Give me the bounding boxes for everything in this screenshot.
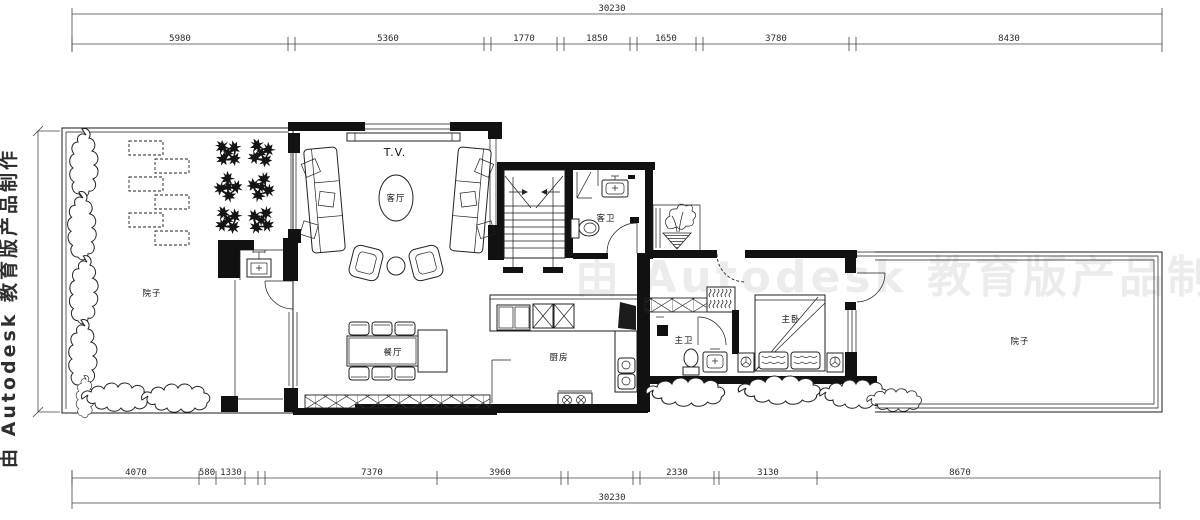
dim-top-total: 30230 xyxy=(598,4,625,14)
low-cabinet-strip xyxy=(305,395,490,408)
dim-top-1: 5980 xyxy=(169,34,191,44)
side-table xyxy=(387,257,405,275)
master-bath-door xyxy=(698,317,726,345)
double-sink xyxy=(618,358,635,389)
dim-top-6: 3780 xyxy=(765,34,787,44)
cooktop-units xyxy=(533,304,574,328)
entry-porch xyxy=(218,238,298,412)
master-toilet xyxy=(683,349,699,375)
guest-toilet xyxy=(571,219,599,238)
dimension-chain-bottom: 4070 580 1330 7370 3960 2330 3130 8670 3… xyxy=(72,468,1160,509)
dim-bottom-2: 580 xyxy=(199,468,215,478)
tv-cabinet xyxy=(347,133,460,141)
kitchen-label: 厨房 xyxy=(549,352,568,363)
guest-bathroom-label: 客卫 xyxy=(596,213,615,224)
master-sink xyxy=(703,349,727,372)
floorplan-canvas: 由 Autodesk 教育版产品制作 由 Autodesk 教育版产品制作 30… xyxy=(0,0,1200,520)
dim-bottom-7: 3130 xyxy=(757,468,779,478)
stair-direction-arrows xyxy=(522,189,547,195)
courtyard-left-label: 院子 xyxy=(142,288,161,299)
dim-bottom-4: 7370 xyxy=(361,468,383,478)
dimension-line-left xyxy=(33,126,60,417)
nightstand-right xyxy=(827,353,843,372)
living-room: T.V. 客厅 xyxy=(288,122,502,282)
stepping-stones xyxy=(129,141,189,245)
dimension-chain-top: 30230 5980 5360 1770 1850 1650 3780 8430 xyxy=(72,4,1162,52)
dim-top-7: 8430 xyxy=(998,34,1020,44)
shower-screen xyxy=(577,172,592,198)
tree-group xyxy=(206,135,280,238)
bed xyxy=(755,295,825,371)
potted-plant xyxy=(663,204,696,249)
dim-top-3: 1770 xyxy=(513,34,535,44)
armchair-right xyxy=(408,244,445,282)
dim-bottom-5: 3960 xyxy=(489,468,511,478)
sideboard xyxy=(418,330,447,372)
dining-room: 餐厅 xyxy=(293,322,497,415)
dim-bottom-3: 1330 xyxy=(220,468,242,478)
armchair-left xyxy=(348,244,385,282)
hedge-left xyxy=(66,129,99,418)
nightstand-left xyxy=(738,353,754,372)
watermark-left-text: 由 Autodesk 教育版产品制作 xyxy=(0,148,20,468)
courtyard-right-label: 院子 xyxy=(1010,336,1029,347)
living-room-label: 客厅 xyxy=(386,193,405,204)
guest-sink xyxy=(602,175,635,197)
closet-hangers xyxy=(707,287,735,312)
dim-bottom-8: 8670 xyxy=(949,468,971,478)
master-bathroom-label: 主卫 xyxy=(674,335,693,346)
hedge-bottom xyxy=(82,383,210,412)
wardrobe xyxy=(645,298,710,312)
fridge xyxy=(497,305,530,330)
dim-bottom-1: 4070 xyxy=(125,468,147,478)
dim-top-2: 5360 xyxy=(377,34,399,44)
entry-basin xyxy=(247,250,271,277)
bushes-south xyxy=(646,376,921,411)
tv-label: T.V. xyxy=(383,146,407,159)
porch-door xyxy=(265,281,293,309)
master-bathroom: 主卫 xyxy=(656,310,739,375)
dim-bottom-6: 2330 xyxy=(666,468,688,478)
master-bedroom-label: 主卧 xyxy=(781,314,800,325)
dim-bottom-total: 30230 xyxy=(598,493,625,503)
guest-bathroom: 客卫 xyxy=(571,162,653,259)
watermark-educational-left: 由 Autodesk 教育版产品制作 xyxy=(0,148,20,468)
counter-corner-unit xyxy=(618,302,636,330)
floorplan-drawing: 由 Autodesk 教育版产品制作 由 Autodesk 教育版产品制作 30… xyxy=(0,0,1200,520)
dim-top-4: 1850 xyxy=(586,34,608,44)
dim-top-5: 1650 xyxy=(655,34,677,44)
dining-room-label: 餐厅 xyxy=(383,348,402,358)
planter-nook xyxy=(653,204,700,250)
